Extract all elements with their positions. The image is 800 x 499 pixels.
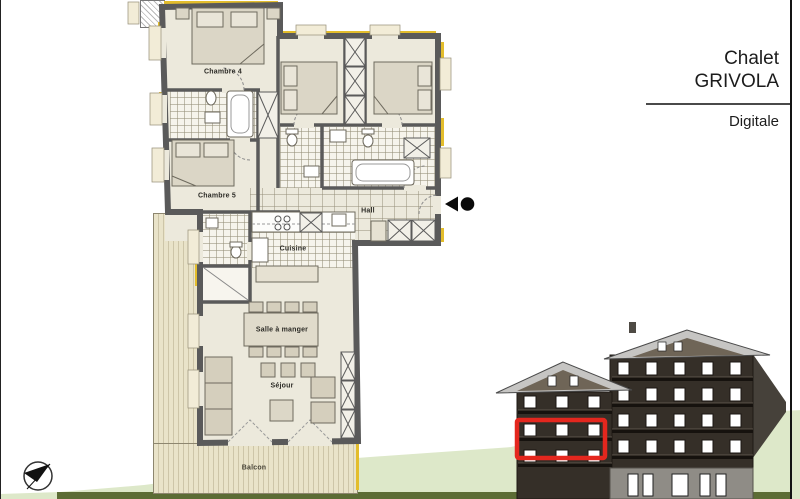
chair	[303, 302, 317, 312]
base-window	[700, 474, 710, 496]
base-window	[628, 474, 638, 496]
armchair	[311, 402, 335, 423]
chair	[303, 347, 317, 357]
armchair	[311, 377, 335, 398]
sink	[206, 218, 218, 228]
label-chambre5: Chambre 5	[198, 193, 236, 200]
sink	[330, 130, 346, 142]
label-chambre4: Chambre 4	[204, 69, 242, 76]
nightstand	[176, 8, 189, 19]
entrance-triangle-icon	[445, 197, 458, 212]
label-hall: Hall	[361, 208, 375, 215]
nightstand	[267, 8, 280, 19]
toilet	[231, 246, 241, 258]
hall-cabinet	[371, 221, 386, 241]
title-divider	[646, 103, 791, 105]
building-elevation	[496, 322, 786, 499]
chair	[267, 302, 281, 312]
base-door	[672, 474, 688, 496]
base-window	[716, 474, 726, 496]
kitchen-island	[256, 266, 318, 282]
entrance-dot-icon	[461, 197, 475, 211]
toilet	[287, 134, 297, 146]
chair	[249, 302, 263, 312]
attic-window	[658, 342, 666, 351]
sofa	[205, 357, 232, 435]
toilet	[363, 135, 373, 147]
chair	[285, 302, 299, 312]
attic-window	[570, 376, 578, 386]
kitchen-appliance	[252, 238, 268, 262]
drawing-sheet: Chambre 4 Chambre 5 Hall Cuisine Salle à…	[0, 0, 800, 499]
label-salle-a-manger: Salle à manger	[256, 327, 308, 334]
chalet-label: Chalet	[695, 47, 779, 70]
sink	[304, 166, 319, 177]
pouf	[301, 363, 315, 377]
hill-wedge	[750, 350, 786, 462]
kitchen-sink	[332, 214, 346, 226]
sink	[205, 112, 220, 123]
attic-window	[548, 376, 556, 386]
toilet	[206, 91, 216, 105]
north-arrow	[24, 462, 52, 490]
sheet-border-left	[0, 0, 1, 499]
pouf	[261, 363, 275, 377]
sheet-border-right	[790, 0, 792, 499]
chimney	[629, 322, 636, 333]
chair	[267, 347, 281, 357]
base-window	[643, 474, 653, 496]
floor-plan	[24, 1, 474, 490]
chair	[249, 347, 263, 357]
title-block: Chalet GRIVOLA	[695, 47, 779, 93]
label-balcon: Balcon	[242, 465, 267, 472]
label-cuisine: Cuisine	[280, 246, 307, 253]
entrance-marker	[445, 197, 474, 212]
pouf	[281, 363, 295, 377]
plan-linework	[0, 0, 800, 499]
coffee-table	[270, 400, 293, 421]
chalet-name: GRIVOLA	[695, 70, 779, 93]
label-sejour: Séjour	[271, 383, 294, 390]
chair	[285, 347, 299, 357]
attic-window	[674, 342, 682, 351]
unit-name: Digitale	[729, 113, 779, 130]
